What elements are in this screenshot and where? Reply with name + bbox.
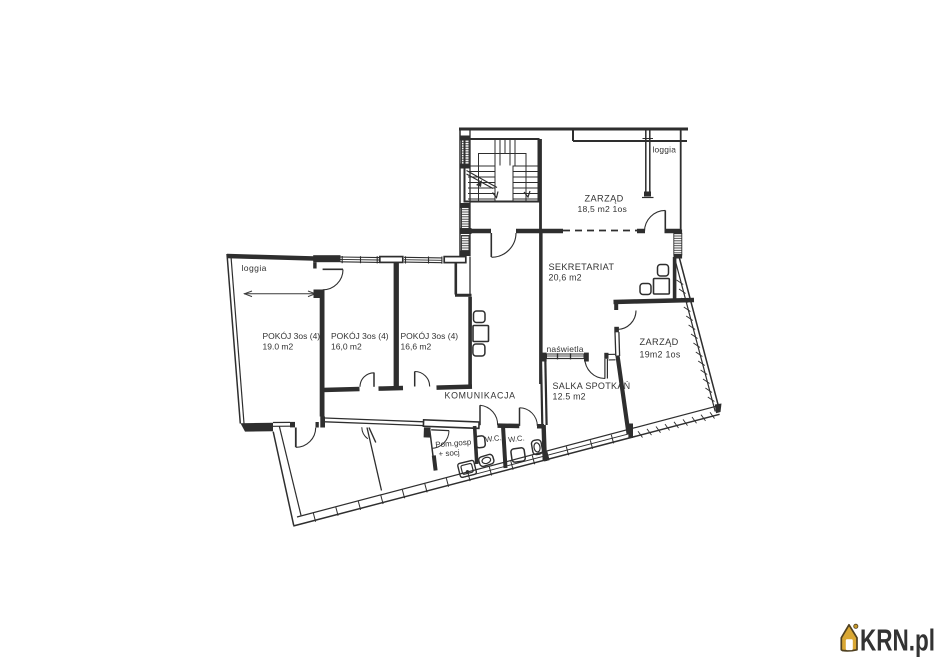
- svg-text:W.C.: W.C.: [485, 433, 502, 444]
- svg-text:KOMUNIKACJA: KOMUNIKACJA: [445, 391, 516, 401]
- svg-text:19m2 1os: 19m2 1os: [640, 350, 681, 360]
- svg-text:ZARZĄD: ZARZĄD: [585, 194, 624, 204]
- svg-text:POKÓJ 3os (4): POKÓJ 3os (4): [331, 331, 389, 341]
- svg-text:POKÓJ 3os (4): POKÓJ 3os (4): [263, 331, 321, 341]
- svg-text:20,6 m2: 20,6 m2: [549, 273, 582, 283]
- svg-text:18,5 m2 1os: 18,5 m2 1os: [578, 204, 628, 214]
- svg-text:SALKA SPOTKAŃ: SALKA SPOTKAŃ: [553, 381, 631, 391]
- svg-text:KRN.pl: KRN.pl: [860, 624, 935, 658]
- svg-text:16,6 m2: 16,6 m2: [401, 342, 432, 352]
- svg-text:ZARZĄD: ZARZĄD: [640, 337, 679, 347]
- svg-text:naświetla: naświetla: [547, 344, 584, 354]
- svg-text:POKÓJ 3os (4): POKÓJ 3os (4): [401, 331, 459, 341]
- svg-text:19.0 m2: 19.0 m2: [263, 342, 294, 352]
- svg-text:SEKRETARIAT: SEKRETARIAT: [549, 262, 615, 272]
- svg-text:loggia: loggia: [653, 145, 677, 155]
- svg-text:loggia: loggia: [242, 263, 267, 273]
- svg-text:+ socj: + socj: [438, 448, 460, 459]
- svg-text:16,0 m2: 16,0 m2: [331, 342, 362, 352]
- svg-text:12.5 m2: 12.5 m2: [553, 392, 586, 402]
- svg-text:W.C.: W.C.: [508, 433, 525, 444]
